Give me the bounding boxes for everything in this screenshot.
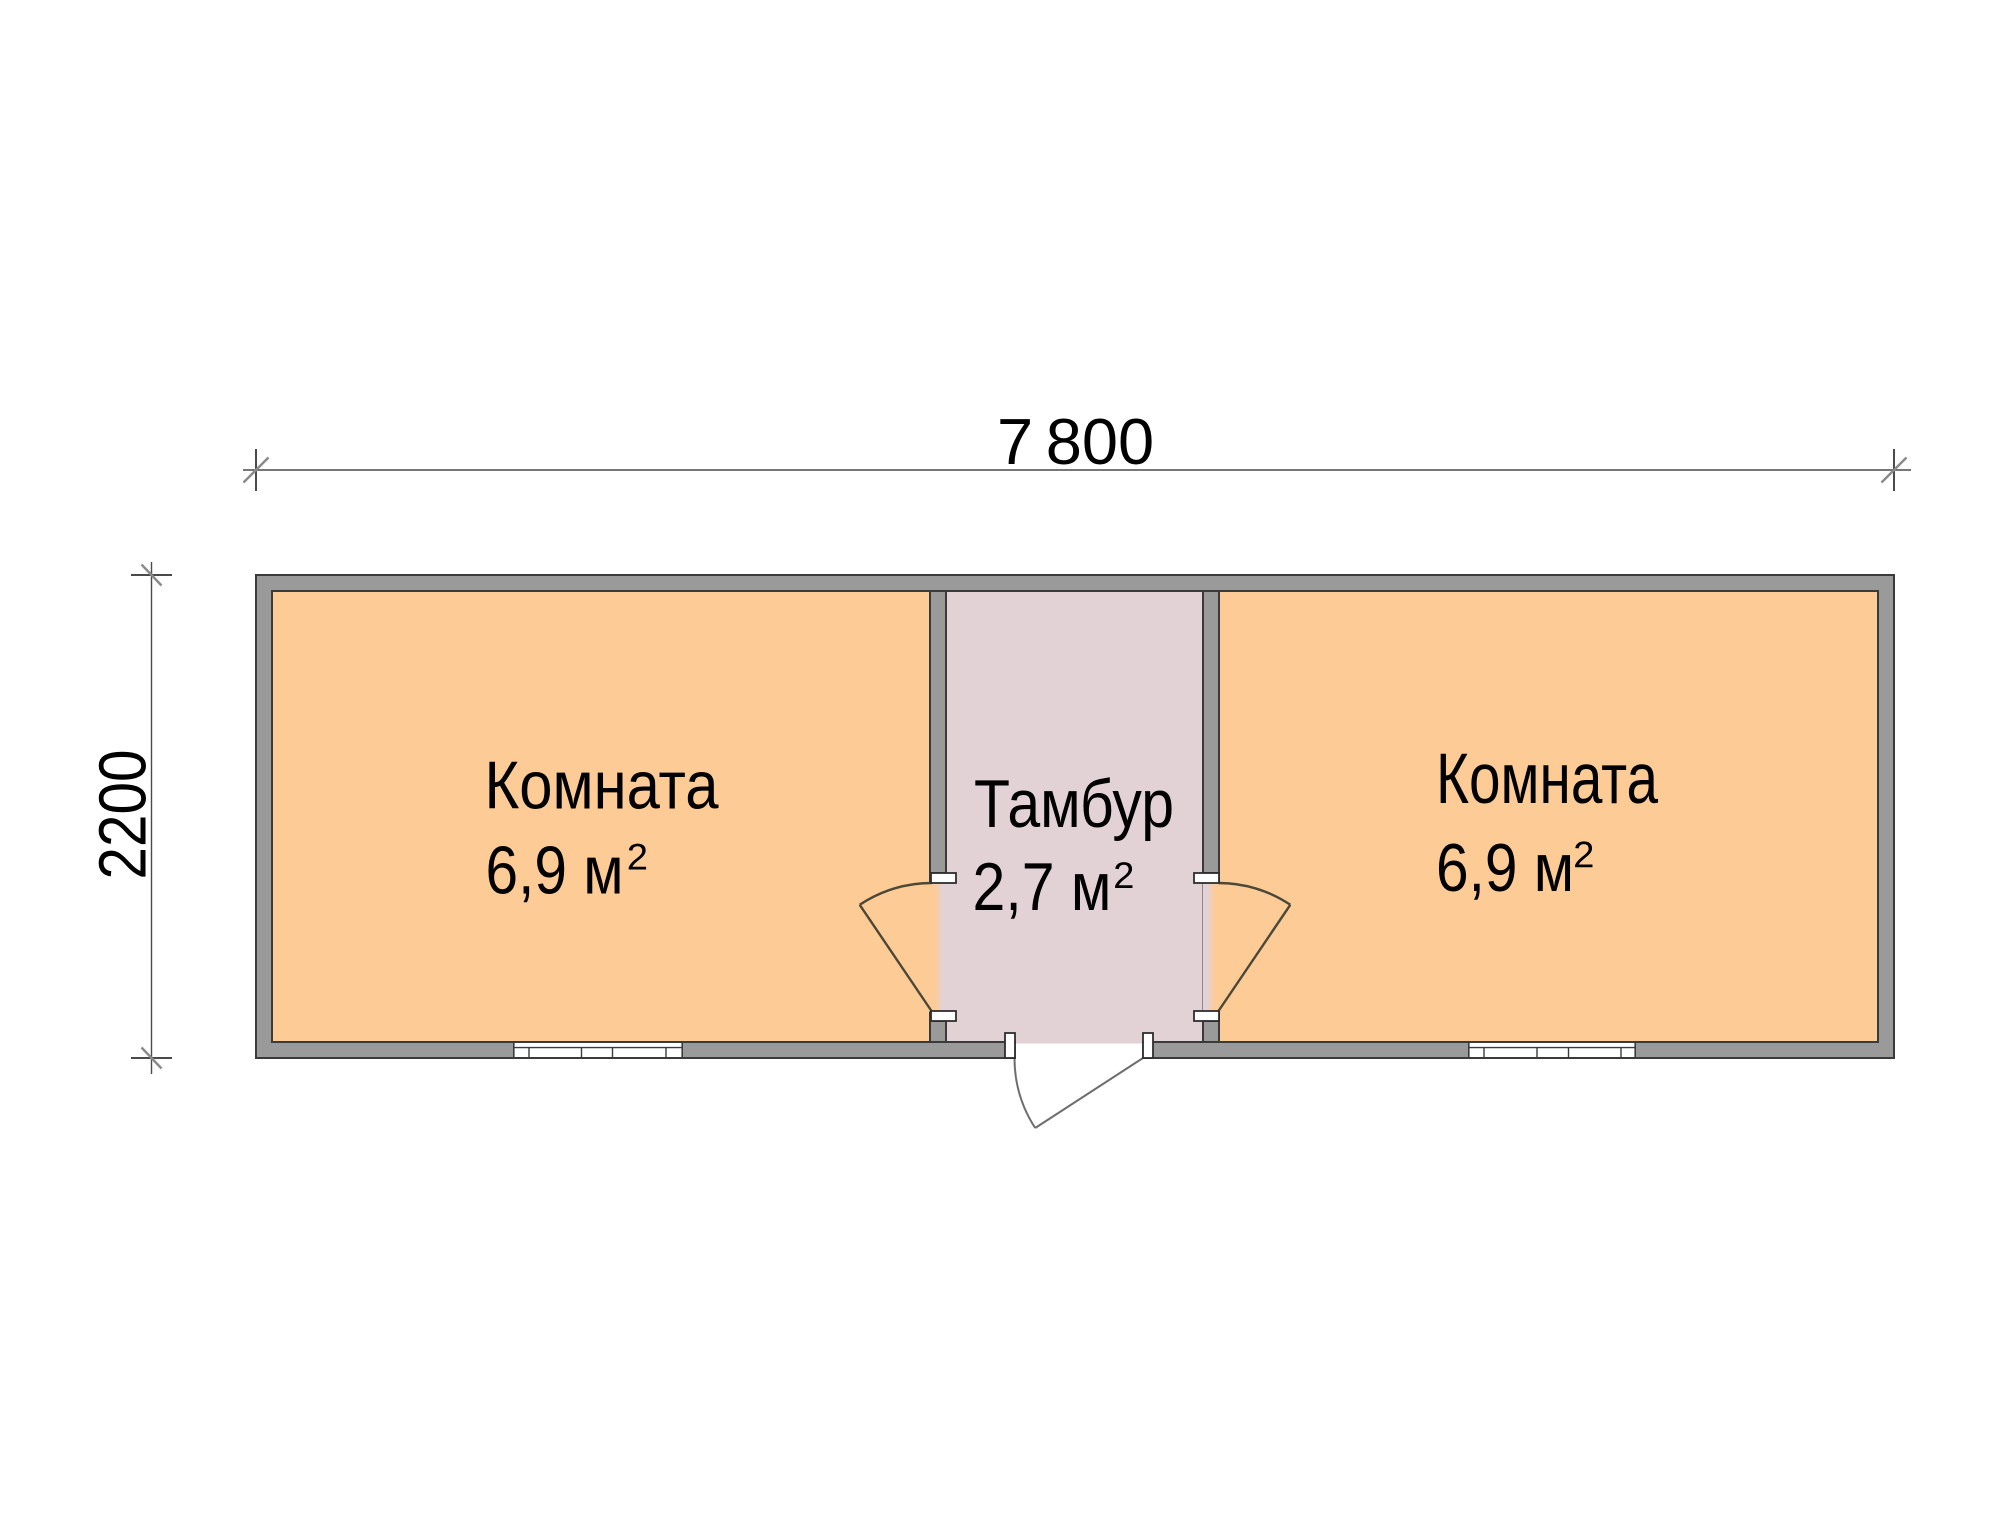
svg-text:Комната: Комната [1436,740,1658,819]
svg-text:2200: 2200 [86,750,161,880]
svg-text:Комната: Комната [485,748,719,824]
svg-text:6,9 м: 6,9 м [486,833,624,909]
svg-text:6,9 м: 6,9 м [1436,830,1574,906]
svg-text:2,7 м: 2,7 м [973,849,1112,925]
svg-text:7 800: 7 800 [997,405,1154,478]
svg-text:Тамбур: Тамбур [974,766,1174,842]
